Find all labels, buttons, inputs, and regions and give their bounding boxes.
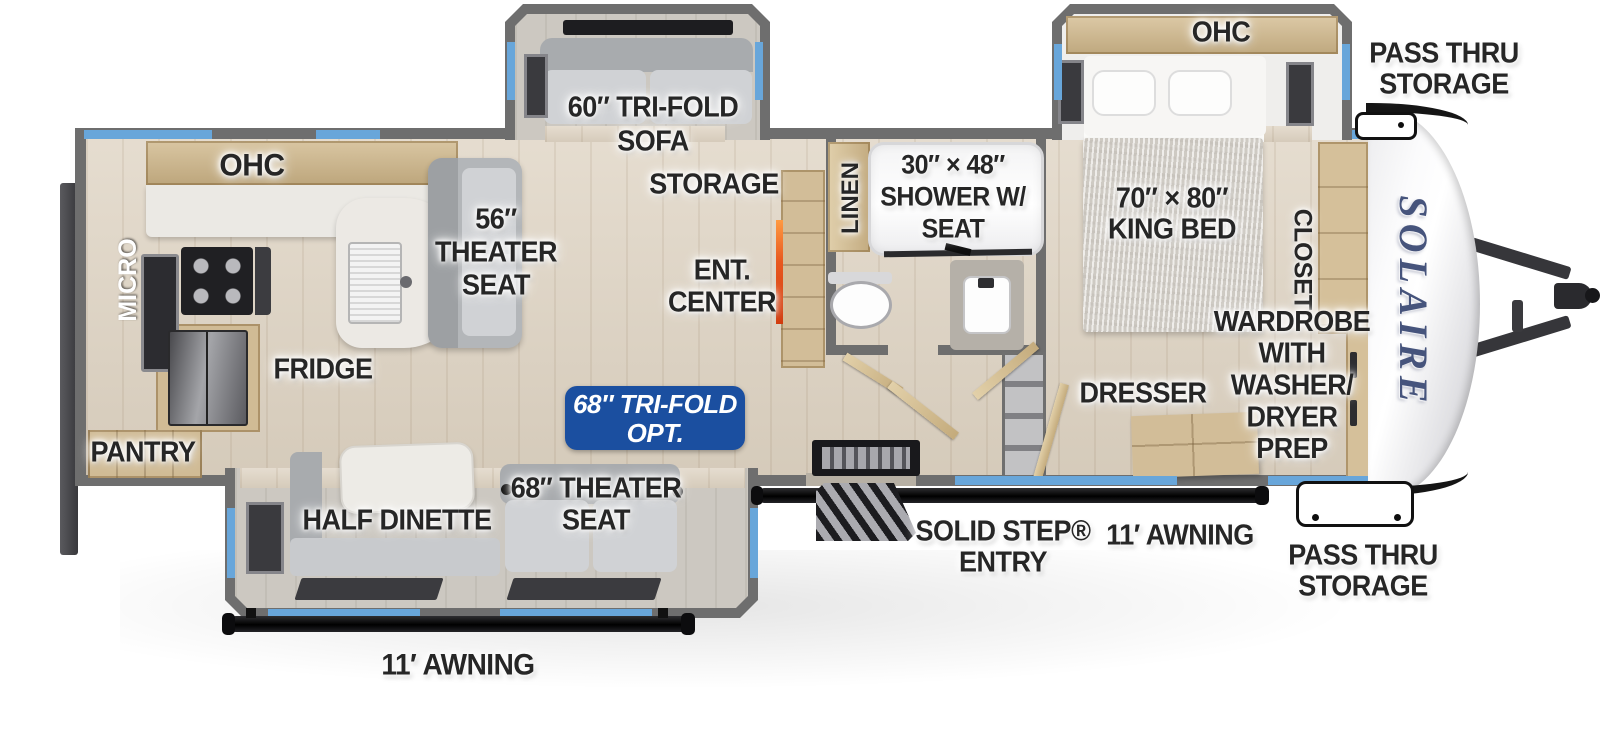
bedroom-ohc-label: OHC xyxy=(1192,17,1251,48)
linen-label: LINEN xyxy=(837,138,861,258)
shower-label: 30″ × 48″ SHOWER W/ SEAT xyxy=(880,149,1026,244)
latch-dot xyxy=(1398,122,1404,128)
theater-seat-56-label: 56″ THEATER SEAT xyxy=(435,203,557,302)
fridge-door-split xyxy=(206,332,208,424)
bath-wall-bottom-a xyxy=(826,345,888,355)
latch-dot xyxy=(1394,514,1401,521)
footrest-left xyxy=(294,578,443,600)
awning-camp-side-label: 11′ AWNING xyxy=(381,649,534,681)
brand-logo-text: SOLAIRE xyxy=(1391,195,1436,408)
dresser-label: DRESSER xyxy=(1079,378,1206,409)
badge-line-1: 68″ TRI-FOLD xyxy=(565,390,745,419)
window-strip xyxy=(227,508,235,578)
awning-bracket xyxy=(246,608,256,618)
solid-step-entry-label: SOLID STEP® ENTRY xyxy=(916,516,1091,577)
awning-rod-cap xyxy=(681,613,695,635)
awning-door-side-label: 11′ AWNING xyxy=(1106,520,1254,551)
stove-cooktop xyxy=(181,247,253,315)
hitch-a-frame-upper xyxy=(1468,237,1571,280)
fridge xyxy=(168,330,248,426)
pass-thru-bottom-label: PASS THRU STORAGE xyxy=(1288,540,1438,601)
footrest-right xyxy=(506,578,661,600)
micro-label: MICRO xyxy=(114,215,140,345)
dinette-window-dark xyxy=(246,502,284,574)
awning-rod-cap xyxy=(222,613,235,635)
window-strip xyxy=(84,130,212,139)
window-strip xyxy=(755,42,763,100)
kitchen-ohc-cabinet xyxy=(146,141,458,185)
floorplan-canvas: SOLAIRE 68″ TRI-FOLD OPT. OHC MICRO FRID… xyxy=(0,0,1600,738)
window-strip xyxy=(507,42,515,100)
entertainment-center-cabinet xyxy=(781,170,825,368)
storage-label: STORAGE xyxy=(649,169,779,200)
king-bed-label: 70″ × 80″ KING BED xyxy=(1108,183,1236,244)
sofa-60-label: 60″ TRI-FOLD SOFA xyxy=(568,90,738,158)
stove-controls xyxy=(255,247,271,315)
hitch-ball-knob xyxy=(1585,288,1600,303)
tri-fold-option-badge: 68″ TRI-FOLD OPT. xyxy=(565,386,745,450)
faucet-icon xyxy=(400,276,412,288)
badge-line-2: OPT. xyxy=(565,419,745,448)
tv-strip xyxy=(563,20,733,35)
dinette-bench-seat xyxy=(290,538,500,576)
window-strip xyxy=(1342,44,1350,100)
theater-seat-68-label: 68″ THEATER SEAT xyxy=(511,472,681,536)
fridge-label: FRIDGE xyxy=(273,354,372,385)
hitch-jack xyxy=(1512,300,1523,332)
awning-bracket xyxy=(658,608,668,618)
sofa-slide-window-dark xyxy=(524,54,548,118)
awning-rod-camp-side xyxy=(228,616,690,632)
pillow-right xyxy=(1168,70,1232,116)
sink xyxy=(348,242,402,324)
pantry-label: PANTRY xyxy=(91,437,196,468)
pass-thru-door-top xyxy=(1355,112,1417,140)
awning-rod-cap xyxy=(1255,486,1269,505)
fireplace-strip xyxy=(776,220,783,324)
latch-dot xyxy=(1312,514,1319,521)
closet-label: CLOSET xyxy=(1292,198,1317,322)
brand-logo: SOLAIRE xyxy=(1393,170,1437,434)
sofa-back xyxy=(540,38,753,72)
ent-center-label: ENT. CENTER xyxy=(668,254,776,318)
window-strip xyxy=(955,476,1177,485)
toilet xyxy=(830,281,892,329)
entry-step-platform-tread xyxy=(822,447,910,469)
pass-thru-top-label: PASS THRU STORAGE xyxy=(1369,38,1519,99)
bath-faucet-icon xyxy=(978,278,994,288)
awning-rod-cap xyxy=(751,486,763,505)
pillow-left xyxy=(1092,70,1156,116)
window-strip xyxy=(316,130,380,139)
window-strip xyxy=(1054,44,1062,100)
kitchen-ohc-label: OHC xyxy=(219,149,284,183)
window-strip xyxy=(750,508,758,578)
half-dinette-label: HALF DINETTE xyxy=(303,505,492,536)
wardrobe-label: WARDROBE WITH WASHER/ DRYER PREP xyxy=(1214,306,1371,465)
bedroom-slide-window-dark-right xyxy=(1286,62,1314,126)
